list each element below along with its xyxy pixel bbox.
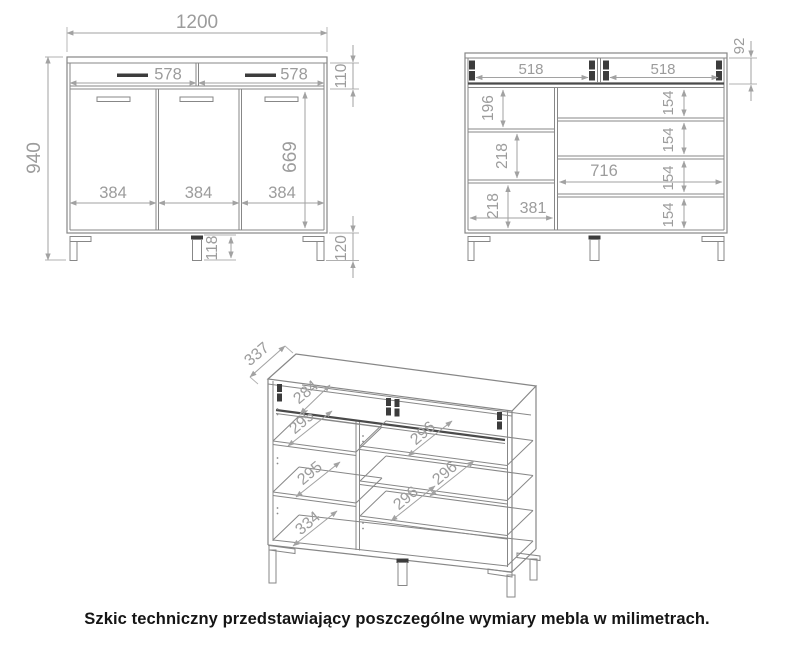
door-handle (265, 97, 298, 102)
legs (468, 236, 724, 261)
dim-label-overall-height: 940 (24, 142, 45, 174)
dim-label-drawer-width-right: 578 (280, 66, 308, 84)
dim-drawer-widths: 578 578 (70, 66, 324, 84)
caption: Szkic techniczny przedstawiający poszcze… (0, 610, 794, 629)
legs (70, 236, 324, 261)
dim-door-widths: 384 384 384 (70, 184, 324, 203)
drawer-handle (245, 74, 276, 78)
dim-label-shelf-2: 154 (660, 127, 677, 152)
dim-overall-height: 940 (24, 57, 66, 260)
dim-label-shelf-4: 154 (660, 202, 677, 227)
dim-label-left-bottom-depth: 334 (292, 508, 323, 538)
dim-label-right-depth-1: 296 (407, 418, 438, 448)
dim-label-left-width: 381 (520, 200, 547, 217)
dim-label-drawer-front-height: 110 (333, 63, 350, 88)
front-view-drawing: 1200 940 578 578 110 669 384 (24, 12, 359, 278)
dim-label-right-depth-2: 296 (429, 458, 460, 488)
dim-door-height: 669 (280, 92, 305, 228)
dim-label-left-depth-2: 295 (294, 458, 325, 488)
dim-leg-height: 120 (326, 216, 359, 278)
dim-label-depth: 337 (241, 339, 272, 369)
dim-label-drawer-depth: 284 (290, 377, 321, 407)
dim-label-leg-height: 120 (333, 235, 350, 261)
dim-label-drawer-inner-left: 518 (518, 61, 543, 78)
technical-drawing-canvas: 1200 940 578 578 110 669 384 (0, 0, 794, 600)
dim-label-shelf-1: 154 (660, 90, 677, 115)
dim-label-drawer-inner-right: 518 (650, 61, 675, 78)
dim-left-compartments: 196 218 218 (480, 90, 517, 228)
dim-depth: 337 (241, 339, 293, 384)
dim-label-left-top: 196 (480, 95, 497, 121)
dim-left-shelf-depths: 295 295 334 (286, 407, 340, 546)
dim-label-drawer-inner-height: 92 (731, 38, 748, 55)
dim-label-door-height: 669 (280, 141, 301, 173)
dim-label-left-bottom: 218 (485, 193, 502, 219)
dim-label-right-width: 716 (590, 162, 618, 180)
drawer-handle (117, 74, 148, 78)
dim-label-right-depth-3: 296 (390, 483, 421, 513)
cabinet-outline (465, 53, 727, 233)
isometric-view-drawing: 337 284 295 295 334 296 296 296 (241, 339, 540, 597)
dim-right-width: 716 (560, 162, 723, 182)
dim-label-door-width-1: 384 (99, 184, 127, 202)
dim-overall-width: 1200 (67, 12, 327, 52)
dim-label-shelf-3: 154 (660, 165, 677, 190)
dim-label-door-width-2: 384 (185, 184, 213, 202)
door-handle (180, 97, 213, 102)
dim-label-door-width-3: 384 (268, 184, 296, 202)
dim-drawer-front-height: 110 (330, 45, 359, 107)
dim-drawer-inner-height: 92 (729, 38, 757, 101)
door-handle (97, 97, 130, 102)
dim-center-leg-height: 118 (204, 235, 236, 260)
dim-left-width: 381 (470, 200, 553, 218)
dim-label-overall-width: 1200 (176, 12, 218, 33)
dim-label-drawer-width-left: 578 (154, 66, 182, 84)
legs (269, 546, 540, 598)
technical-sketch-page: 1200 940 578 578 110 669 384 (0, 0, 794, 649)
interior-view-drawing: 518 518 92 196 218 218 381 716 (465, 38, 757, 261)
dim-label-left-middle: 218 (494, 143, 511, 169)
dim-label-center-leg-height: 118 (204, 236, 221, 261)
